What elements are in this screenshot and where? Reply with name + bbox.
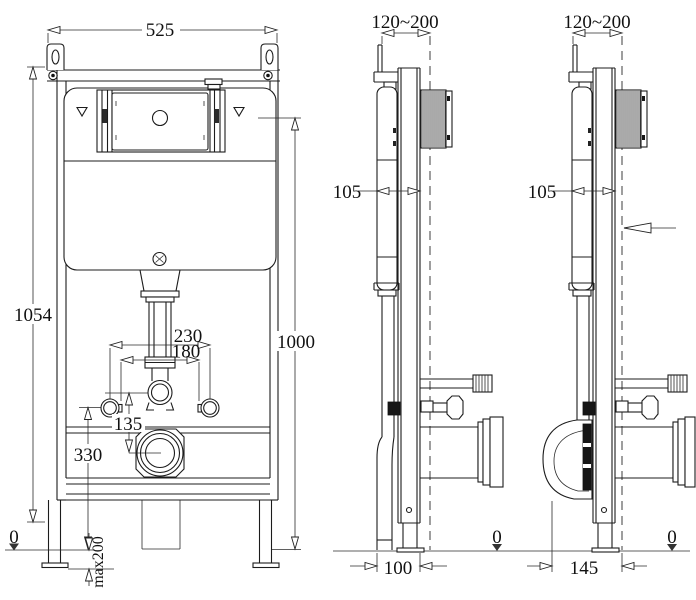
dim-label-1000: 1000 <box>277 332 315 353</box>
seal-gasket <box>388 402 400 415</box>
dim-label-180: 180 <box>172 342 201 363</box>
waste-connector-side <box>420 417 503 487</box>
leg-side <box>397 523 424 552</box>
protection-box <box>421 90 452 148</box>
dim-label-1054: 1054 <box>14 305 53 326</box>
dim-label-120-200-right: 120~200 <box>563 12 630 33</box>
inlet-stub <box>205 79 222 85</box>
cistern-side-r <box>569 87 594 296</box>
dim-outlet-100: 100 <box>350 553 447 579</box>
mounting-rod-r <box>615 375 687 392</box>
dim-label-max200: max200 <box>90 536 107 588</box>
technical-drawing: 525 1054 1000 230 180 135 <box>0 0 696 600</box>
dim-label-525: 525 <box>146 20 175 41</box>
floor-level-right: 0 <box>667 527 677 551</box>
drain-pipe-down <box>142 500 180 549</box>
elbow-seal-section <box>583 424 591 490</box>
dim-front-width: 525 <box>48 20 277 43</box>
drawing-page: 525 1054 1000 230 180 135 <box>0 0 696 600</box>
bracket-slot-right <box>266 50 273 64</box>
front-view: 525 1054 1000 230 180 135 <box>5 20 317 588</box>
dim-label-105-right: 105 <box>528 182 557 203</box>
fixing-bolt-right <box>198 399 219 417</box>
side-view-wall-outlet: 120~200 105 145 0 <box>527 12 695 579</box>
protection-box-r <box>616 90 647 148</box>
mounting-rod <box>420 375 492 392</box>
dim-front-height: 1054 <box>13 67 54 522</box>
floor-level-mid: 0 <box>492 527 502 551</box>
dim-frame-depth-right: 105 <box>528 182 615 203</box>
dim-leg-extension: max200 <box>68 533 114 588</box>
waste-connector-side-r <box>615 417 695 487</box>
tank-drain-screw <box>153 253 166 266</box>
side-view-floor-outlet: 120~200 105 100 0 <box>333 12 503 579</box>
dim-label-330: 330 <box>74 445 103 466</box>
inlet-fitting <box>421 396 463 419</box>
top-bracket-side-r <box>569 45 593 89</box>
flush-pipe-side <box>377 296 394 550</box>
dim-label-120-200-mid: 120~200 <box>371 12 438 33</box>
pan-elbow <box>543 296 592 499</box>
wall-pointer-arrow-icon <box>624 223 651 233</box>
adjustable-legs <box>42 500 279 568</box>
flush-plate-housing <box>77 90 244 152</box>
leg-side-r <box>592 523 619 552</box>
dim-outlet-145: 145 <box>527 501 647 579</box>
dim-depth-range-right: 120~200 <box>563 12 630 44</box>
waste-outlet <box>129 429 184 477</box>
dim-frame-depth-mid: 105 <box>333 182 420 203</box>
latch-slot-left <box>103 109 108 123</box>
cistern-side <box>374 87 399 296</box>
bracket-slot-left <box>52 50 59 64</box>
dim-label-100: 100 <box>384 558 413 579</box>
floor-level-front: 0 <box>5 527 95 551</box>
push-rod-hole <box>153 111 168 126</box>
foot-right <box>253 563 279 568</box>
bottom-crossbar <box>57 478 278 500</box>
frame-rail-side <box>398 68 420 523</box>
frame-rail-side-r <box>593 68 615 523</box>
latch-slot-right <box>215 109 220 123</box>
dim-label-135: 135 <box>114 414 143 435</box>
dim-label-105-mid: 105 <box>333 182 362 203</box>
foot-left <box>42 563 68 568</box>
flush-elbow-connector <box>147 381 174 411</box>
top-bracket-side <box>374 45 398 89</box>
seal-gasket-r <box>583 402 595 415</box>
wall-surface-pointer <box>624 223 676 233</box>
top-crossbar <box>47 44 280 81</box>
dim-label-145: 145 <box>570 558 599 579</box>
dim-depth-range-mid: 120~200 <box>371 12 438 44</box>
